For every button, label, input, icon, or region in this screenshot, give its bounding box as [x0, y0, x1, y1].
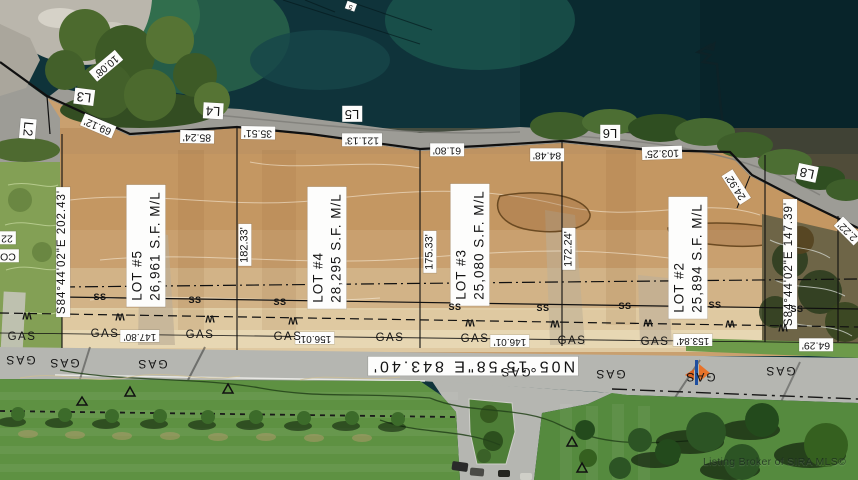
aerial-plat-map: 10.08'L2L369.12'L485.24'35.51'121.13'L56…	[0, 0, 858, 480]
dim-61-80: 61.80'	[430, 144, 464, 157]
line-l6: L6	[600, 125, 620, 141]
sewer-label: SS	[536, 303, 549, 313]
gas-line-label: GAS	[91, 328, 120, 340]
sewer-label: SS	[273, 297, 286, 307]
dim-84-48: 84.48'	[530, 149, 564, 162]
sewer-label: SS	[448, 302, 461, 312]
road-gas-label: GAS	[136, 357, 167, 371]
waterline-label: W	[288, 315, 297, 326]
lot-4-label: LOT #428,295 S.F. M/L	[307, 187, 346, 309]
gas-line-label: GAS	[461, 333, 490, 345]
line-l5: L5	[342, 106, 362, 122]
sewer-label: SS	[708, 300, 721, 310]
waterline-label: W	[725, 318, 734, 329]
dim-147-80: 147.80'	[121, 330, 160, 342]
gas-line-label: GAS	[376, 332, 405, 344]
road-gas-label: GAS	[684, 370, 715, 384]
waterline-label: W	[205, 313, 214, 324]
gas-line-label: GAS	[558, 335, 587, 347]
gas-line-label: GAS	[274, 331, 303, 343]
road-gas-label: GAS	[764, 364, 795, 378]
label-22-left-partial: 22	[0, 232, 16, 245]
dim-153-84: 153.84'	[674, 334, 713, 346]
road-gas-label: GAS	[48, 356, 79, 370]
dim-175-33: 175.33'	[423, 231, 436, 273]
mls-watermark: Listing Broker of SIRA MLS©	[703, 456, 846, 468]
waterline-label: W	[550, 318, 559, 329]
dim-146-01: 146.01'	[491, 335, 530, 347]
dim-85-24: 85.24'	[180, 130, 214, 143]
waterline-label: W	[465, 317, 474, 328]
waterline-label: W	[22, 310, 31, 321]
lot-3-label: LOT #325,080 S.F. M/L	[450, 184, 489, 306]
lot-2-label: LOT #225,894 S.F. M/L	[668, 197, 707, 319]
gas-line-label: GAS	[8, 331, 37, 343]
dim-182-33: 182.33'	[238, 224, 251, 266]
line-l3: L3	[73, 88, 95, 106]
line-l8: L8	[795, 163, 818, 183]
sewer-label: SS	[93, 292, 106, 302]
road-gas-label: GAS	[594, 367, 625, 381]
dim-35-51: 35.51'	[241, 126, 275, 139]
sewer-label: SS	[188, 295, 201, 305]
dim-69-12: 69.12'	[80, 114, 116, 139]
waterline-label: W	[643, 317, 652, 328]
gas-line-label: GAS	[641, 336, 670, 348]
dim-10-08: 10.08'	[89, 50, 123, 82]
bearing-left: S84°44'02"E 202.43'	[56, 187, 70, 317]
dim-121-13: 121.13'	[342, 134, 382, 147]
dim-64-29: 64.29'	[799, 339, 833, 352]
road-gas-label: GAS	[499, 365, 530, 379]
gas-line-label: GAS	[186, 329, 215, 341]
line-l2: L2	[19, 118, 36, 140]
road-bearing: N05°15'58"E 843.40'	[368, 356, 578, 375]
sewer-label: SS	[790, 304, 803, 314]
lot-5-label: LOT #526,961 S.F. M/L	[126, 185, 165, 307]
tiny-structure-label: 5	[345, 0, 357, 11]
waterline-label: W	[115, 311, 124, 322]
dim-24-92: 24.92'	[721, 169, 750, 205]
dim-172-24: 172.24'	[562, 228, 575, 270]
line-l4: L4	[202, 103, 223, 120]
plat-labels-layer: 10.08'L2L369.12'L485.24'35.51'121.13'L56…	[0, 0, 858, 480]
dim-103-25: 103.25'	[642, 146, 683, 160]
dim-22-right-partial: 2.22'	[833, 216, 858, 245]
label-co-left-partial: CO	[0, 250, 19, 263]
sewer-label: SS	[618, 301, 631, 311]
waterline-label: W	[778, 322, 787, 333]
road-gas-label: GAS	[4, 353, 35, 367]
